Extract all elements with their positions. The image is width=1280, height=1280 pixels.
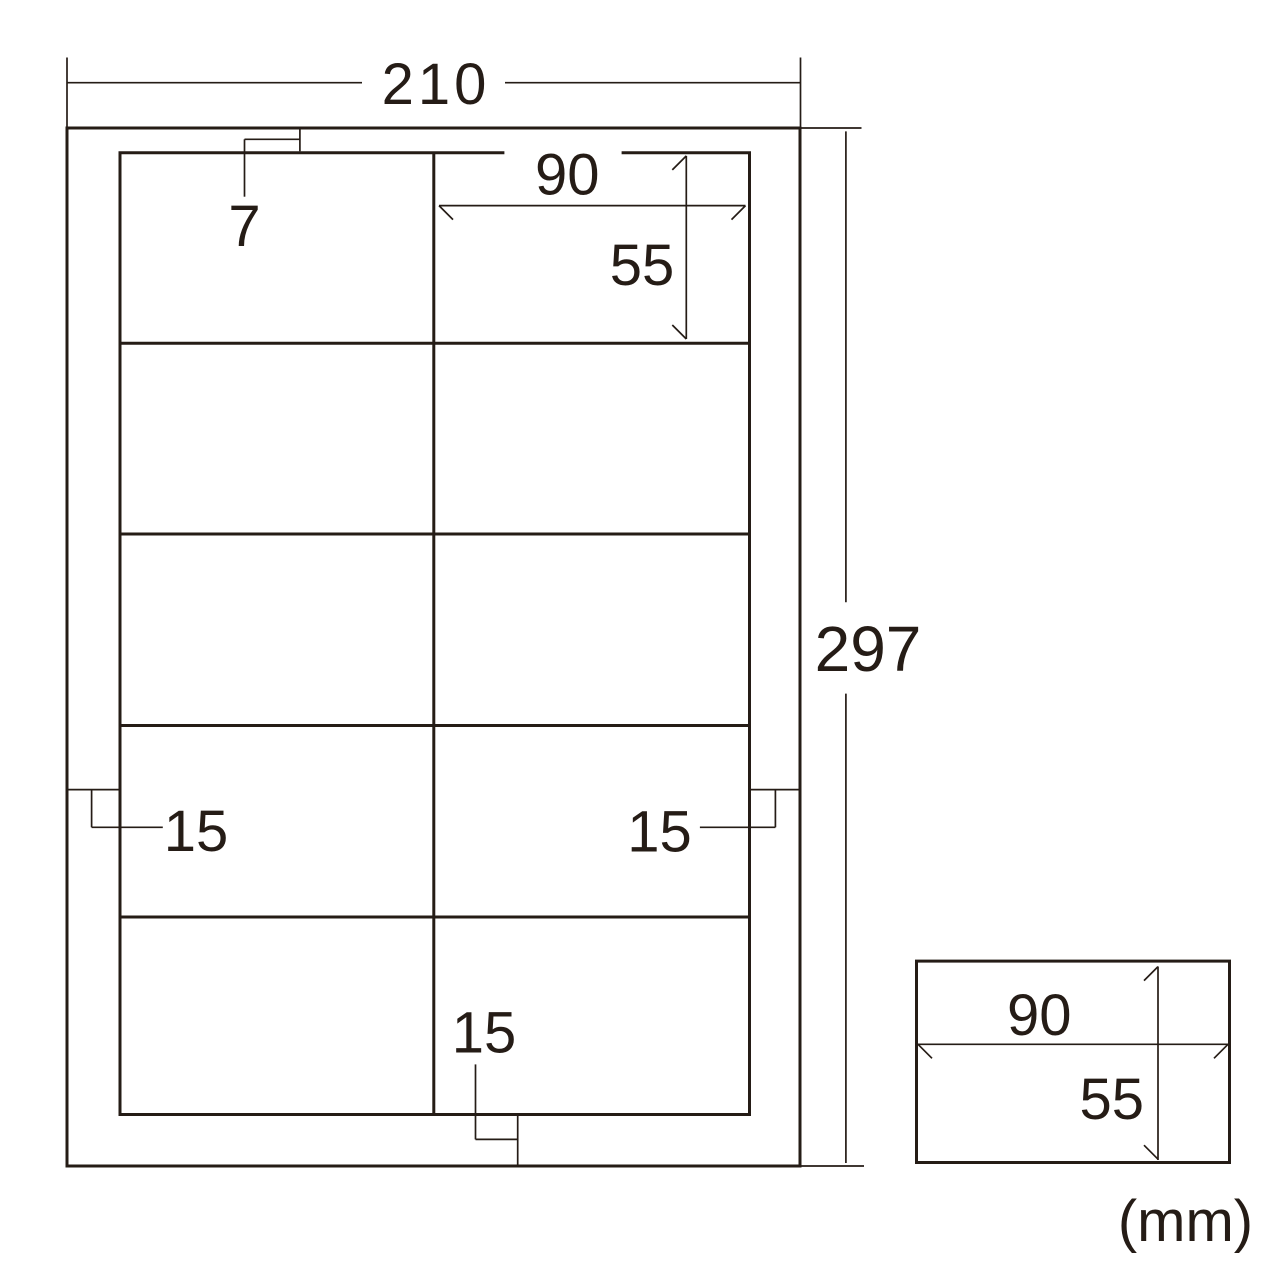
svg-text:7: 7 — [228, 194, 260, 259]
svg-text:15: 15 — [452, 1001, 517, 1066]
svg-text:15: 15 — [164, 799, 229, 864]
svg-text:15: 15 — [627, 800, 692, 865]
svg-text:(mm): (mm) — [1118, 1189, 1253, 1254]
svg-text:90: 90 — [1007, 983, 1072, 1048]
svg-text:297: 297 — [815, 613, 922, 685]
svg-text:210: 210 — [382, 52, 491, 117]
svg-text:55: 55 — [610, 233, 675, 298]
svg-text:55: 55 — [1079, 1067, 1144, 1132]
svg-text:90: 90 — [535, 142, 600, 207]
